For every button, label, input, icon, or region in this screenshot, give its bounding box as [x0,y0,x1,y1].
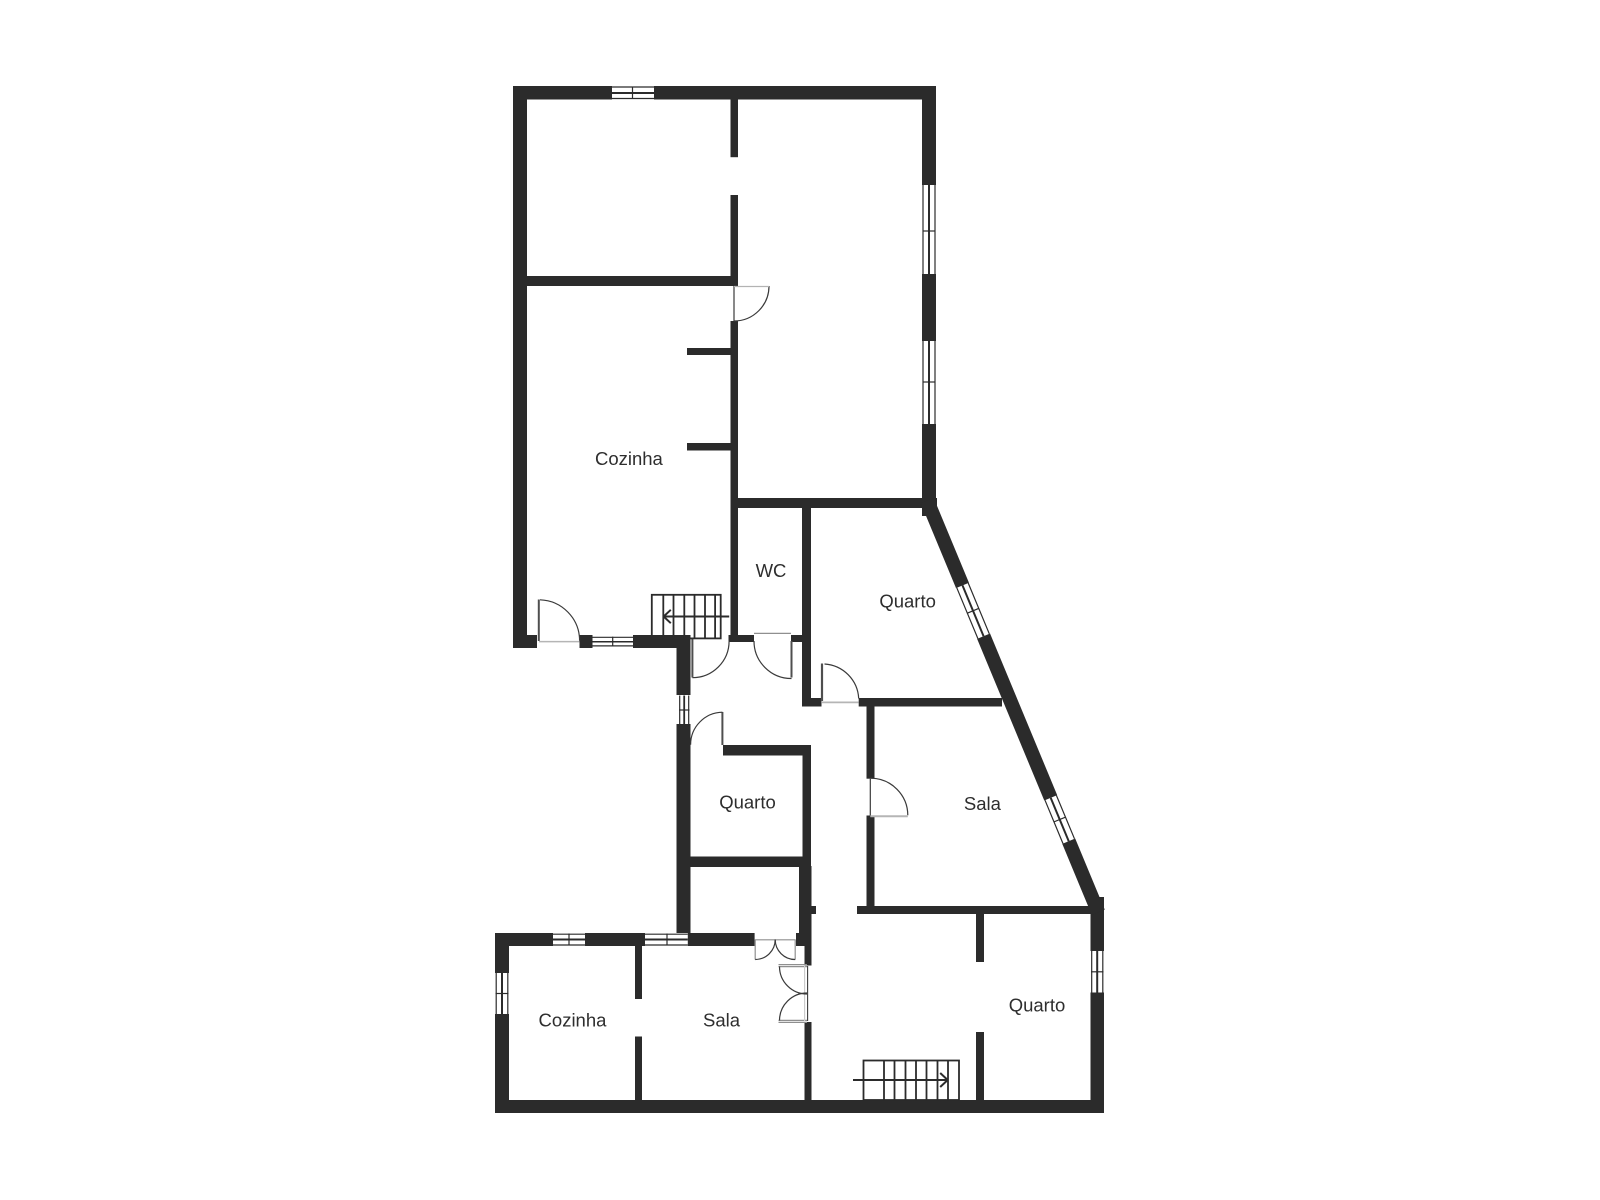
svg-text:Cozinha: Cozinha [539,1009,608,1030]
svg-text:Cozinha: Cozinha [595,448,664,469]
svg-text:Quarto: Quarto [1009,995,1066,1016]
svg-text:Sala: Sala [964,793,1002,814]
svg-text:Quarto: Quarto [879,590,936,611]
svg-text:WC: WC [756,560,787,581]
svg-text:Sala: Sala [703,1009,741,1030]
svg-text:Quarto: Quarto [719,792,776,813]
